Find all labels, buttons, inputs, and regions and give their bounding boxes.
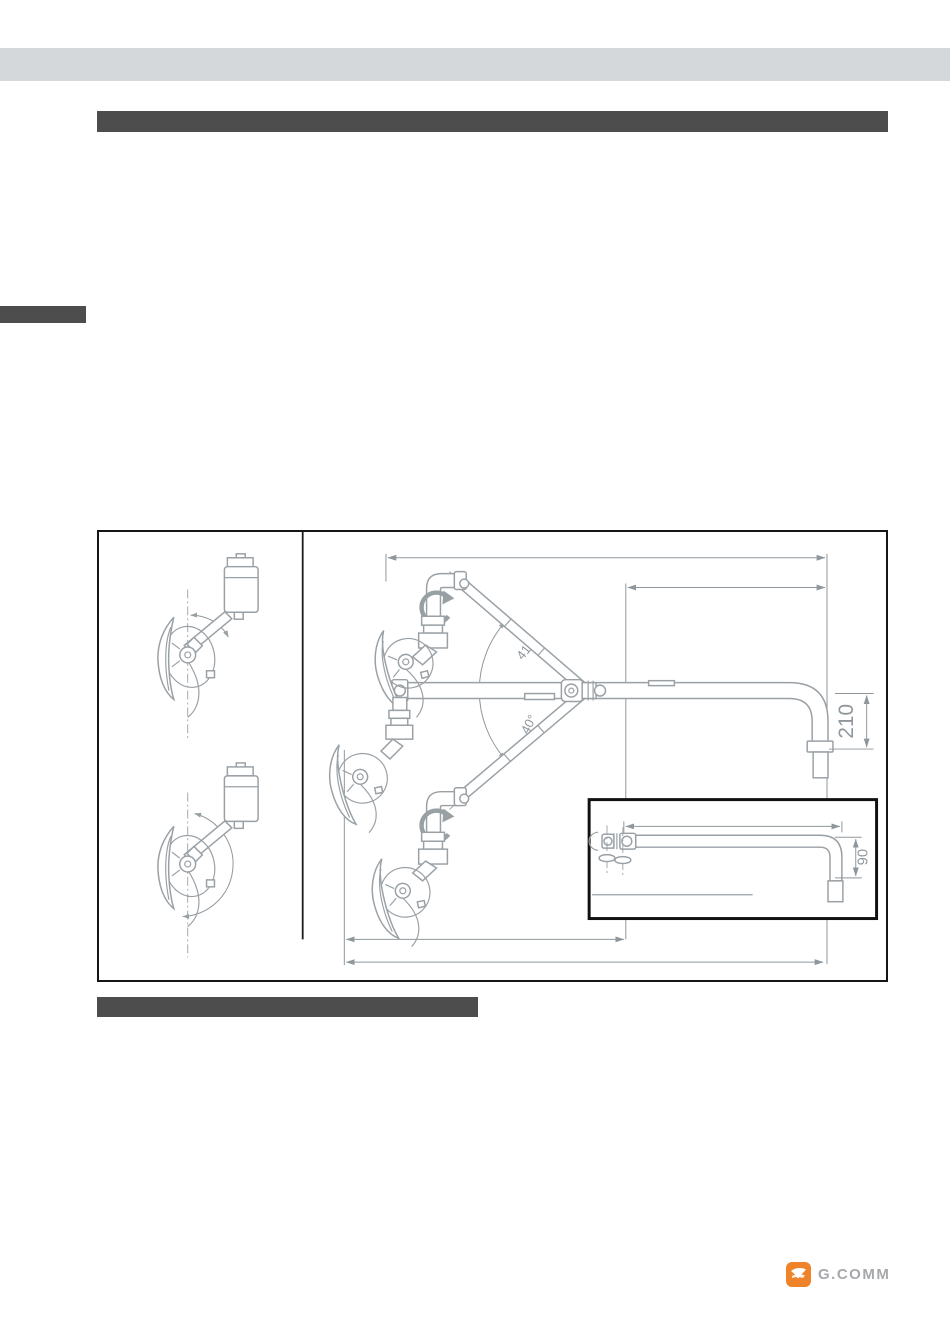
lamp-tilt-view-bottom	[158, 763, 258, 957]
upper-branch	[367, 572, 468, 724]
dim-90-label: 90	[856, 849, 872, 866]
dim-210: 210	[829, 694, 874, 750]
brand-logo: G.COMM	[786, 1262, 890, 1287]
top-gray-band	[0, 48, 950, 81]
gcomm-logo-icon	[786, 1262, 811, 1287]
technical-drawing: 41° 40°	[99, 532, 886, 980]
lamp-tilt-view-top	[158, 554, 258, 738]
lower-branch	[365, 788, 468, 953]
page-edge-tab	[0, 306, 86, 323]
redacted-title-bar	[97, 111, 888, 132]
datasheet-page: 41° 40°	[0, 0, 950, 1332]
inset-detail: 90	[589, 800, 876, 919]
horizontal-arm	[406, 683, 828, 745]
inset-pipe-tail	[828, 881, 843, 902]
technical-drawing-frame: 41° 40°	[97, 530, 888, 982]
middle-branch	[323, 698, 413, 839]
pipe-sleeve	[807, 741, 833, 752]
pipe-tail	[813, 752, 828, 778]
redacted-section-bar	[97, 997, 478, 1017]
brand-logo-text: G.COMM	[818, 1266, 890, 1283]
dim-210-label: 210	[835, 704, 858, 739]
